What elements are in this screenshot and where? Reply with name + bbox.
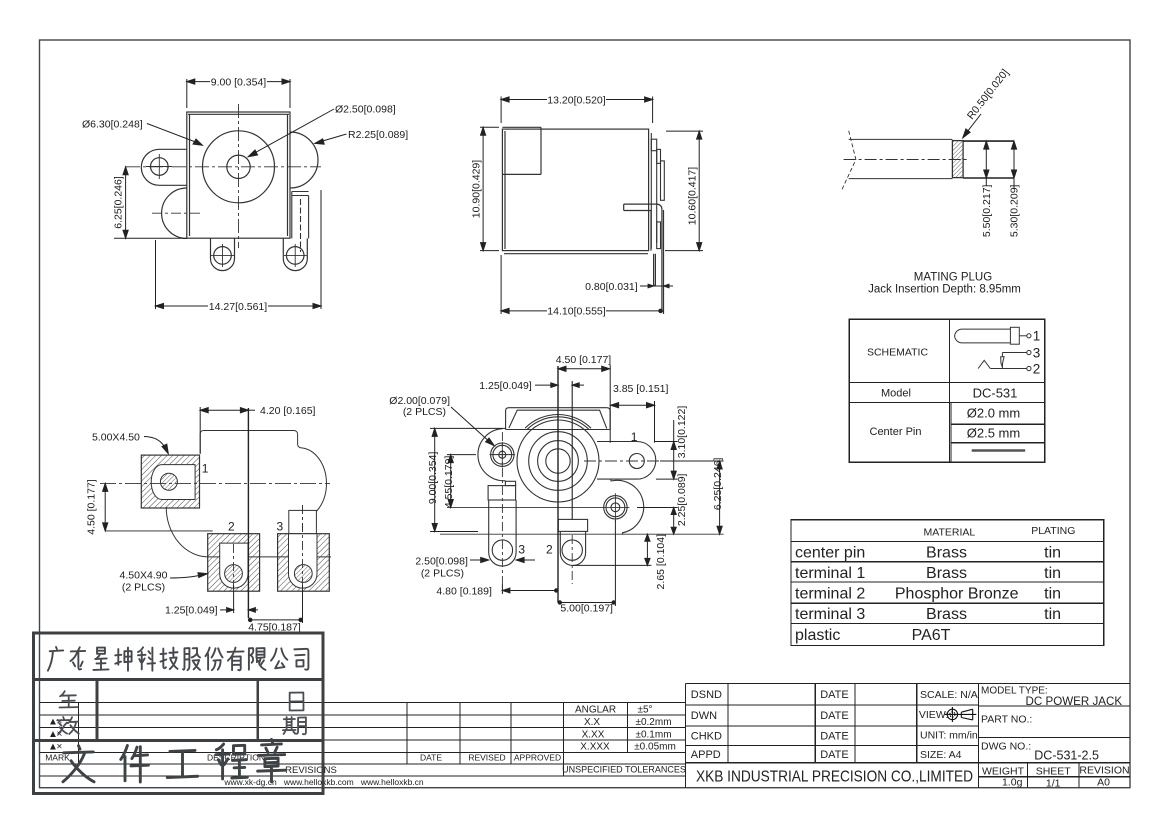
svg-text:Model: Model	[881, 388, 911, 400]
svg-text:±0.2mm: ±0.2mm	[635, 717, 671, 728]
svg-text:13.20[0.520]: 13.20[0.520]	[547, 94, 605, 106]
svg-text:tin: tin	[1044, 565, 1061, 582]
svg-text:1.0g: 1.0g	[1002, 776, 1023, 788]
svg-text:PART NO.:: PART NO.:	[981, 713, 1032, 725]
svg-text:14.27[0.561]: 14.27[0.561]	[209, 301, 267, 313]
svg-text:DWN: DWN	[691, 710, 717, 722]
svg-text:A0: A0	[1097, 776, 1110, 788]
svg-text:(2 PLCS): (2 PLCS)	[403, 406, 446, 418]
svg-text:9.00 [0.354]: 9.00 [0.354]	[211, 76, 267, 88]
svg-text:1/1: 1/1	[1046, 777, 1061, 789]
svg-text:9.00[0.354]: 9.00[0.354]	[427, 452, 439, 505]
svg-text:5.00[0.197]: 5.00[0.197]	[560, 602, 613, 614]
svg-text:REVISION: REVISION	[1079, 764, 1129, 776]
svg-text:X.XX: X.XX	[582, 729, 605, 740]
svg-text:4.50X4.90: 4.50X4.90	[120, 569, 168, 581]
svg-text:±0.05mm: ±0.05mm	[634, 742, 676, 753]
svg-text:4.50 [0.177]: 4.50 [0.177]	[556, 354, 612, 366]
svg-text:DATE: DATE	[820, 749, 849, 761]
svg-text:(2 PLCS): (2 PLCS)	[421, 567, 464, 579]
svg-text:2: 2	[1033, 362, 1041, 377]
svg-text:UNSPECIFIED TOLERANCES: UNSPECIFIED TOLERANCES	[562, 764, 686, 774]
svg-text:1: 1	[202, 461, 209, 475]
svg-text:Brass: Brass	[926, 606, 967, 623]
svg-text:DC-531-2.5: DC-531-2.5	[1034, 749, 1099, 763]
svg-text:5.30[0.209]: 5.30[0.209]	[1008, 184, 1020, 237]
svg-text:1: 1	[631, 430, 638, 444]
svg-text:0.80[0.031]: 0.80[0.031]	[585, 281, 638, 293]
svg-text:10.60[0.417]: 10.60[0.417]	[687, 167, 699, 225]
svg-text:ANGLAR: ANGLAR	[575, 705, 616, 716]
svg-text:SCHEMATIC: SCHEMATIC	[867, 347, 928, 359]
svg-text:4.55[0.179]: 4.55[0.179]	[443, 456, 455, 509]
svg-text:SCALE: N/A: SCALE: N/A	[920, 689, 978, 701]
svg-text:tin: tin	[1044, 544, 1061, 561]
svg-text:PA6T: PA6T	[912, 627, 951, 644]
svg-text:5.50[0.217]: 5.50[0.217]	[981, 184, 993, 237]
svg-text:XKB INDUSTRIAL PRECISION CO.,L: XKB INDUSTRIAL PRECISION CO.,LIMITED	[696, 769, 973, 786]
svg-text:DATE: DATE	[820, 710, 849, 722]
svg-text:×: ×	[57, 741, 63, 752]
svg-text:1.25[0.049]: 1.25[0.049]	[479, 380, 532, 392]
svg-text:3: 3	[277, 520, 284, 534]
svg-text:R2.25[0.089]: R2.25[0.089]	[348, 129, 408, 141]
svg-text:DC POWER JACK: DC POWER JACK	[1026, 694, 1123, 708]
svg-text:tin: tin	[1044, 606, 1061, 623]
svg-text:4.20 [0.165]: 4.20 [0.165]	[260, 405, 316, 417]
svg-text:REVISED: REVISED	[468, 753, 505, 763]
svg-text:1: 1	[1033, 329, 1041, 344]
svg-text:2.65 [0.104]: 2.65 [0.104]	[655, 534, 667, 590]
svg-text:10.90[0.429]: 10.90[0.429]	[471, 160, 483, 218]
svg-text:center pin: center pin	[795, 544, 865, 561]
svg-text:4.50 [0.177]: 4.50 [0.177]	[86, 479, 98, 535]
svg-text:MATERIAL: MATERIAL	[924, 527, 976, 539]
svg-text:2.25[0.089]: 2.25[0.089]	[676, 473, 688, 526]
svg-text:3.85 [0.151]: 3.85 [0.151]	[613, 383, 669, 395]
svg-text:PLATING: PLATING	[1031, 525, 1075, 537]
svg-text:3: 3	[1033, 345, 1041, 360]
svg-text:UNIT: mm/in: UNIT: mm/in	[920, 730, 978, 742]
svg-text:DSND: DSND	[691, 689, 722, 701]
svg-text:4.80 [0.189]: 4.80 [0.189]	[436, 586, 492, 598]
svg-text:5.00X4.50: 5.00X4.50	[92, 432, 140, 444]
svg-text:terminal 1: terminal 1	[795, 565, 865, 582]
svg-text:Ø2.5 mm: Ø2.5 mm	[967, 426, 1020, 441]
svg-text:2: 2	[546, 543, 553, 557]
svg-text:3: 3	[518, 543, 525, 557]
svg-text:SHEET: SHEET	[1036, 765, 1072, 777]
svg-text:Center Pin: Center Pin	[870, 426, 922, 438]
svg-text:3.10[0.122]: 3.10[0.122]	[676, 406, 688, 459]
svg-text:tin: tin	[1044, 585, 1061, 602]
svg-text:CHKD: CHKD	[691, 731, 722, 743]
svg-text:APPD: APPD	[691, 749, 721, 761]
svg-text:Jack Insertion Depth: 8.95mm: Jack Insertion Depth: 8.95mm	[868, 283, 1021, 295]
svg-text:2.50[0.098]: 2.50[0.098]	[415, 556, 468, 568]
svg-text:Ø2.50[0.098]: Ø2.50[0.098]	[335, 103, 396, 115]
svg-text:SIZE: A4: SIZE: A4	[920, 749, 962, 761]
svg-text:X.XXX: X.XXX	[580, 742, 610, 753]
svg-text:Phosphor Bronze: Phosphor Bronze	[895, 585, 1019, 602]
svg-text:DATE: DATE	[820, 731, 849, 743]
svg-text:terminal 3: terminal 3	[795, 606, 865, 623]
svg-text:X.X: X.X	[584, 717, 600, 728]
svg-text:Brass: Brass	[926, 544, 967, 561]
svg-text:Ø2.0 mm: Ø2.0 mm	[967, 406, 1020, 421]
svg-text:DATE: DATE	[820, 689, 849, 701]
svg-text:2: 2	[228, 520, 235, 534]
svg-text:VIEW:: VIEW:	[919, 709, 949, 721]
svg-text:DC-531: DC-531	[973, 386, 1018, 401]
svg-text:(2 PLCS): (2 PLCS)	[122, 581, 165, 593]
svg-text:Brass: Brass	[926, 565, 967, 582]
svg-text:±0.1mm: ±0.1mm	[635, 729, 671, 740]
svg-text:6.25[0.246]: 6.25[0.246]	[113, 176, 125, 229]
svg-text:APPROVED: APPROVED	[514, 753, 561, 763]
svg-text:terminal 2: terminal 2	[795, 585, 865, 602]
svg-text:plastic: plastic	[795, 627, 840, 644]
svg-text:±5°: ±5°	[637, 705, 652, 716]
svg-text:MATING PLUG: MATING PLUG	[914, 271, 992, 283]
svg-text:14.10[0.555]: 14.10[0.555]	[547, 305, 605, 317]
svg-text:REVISIONS: REVISIONS	[285, 765, 337, 776]
svg-text:DWG NO.:: DWG NO.:	[981, 741, 1031, 753]
svg-text:Ø6.30[0.248]: Ø6.30[0.248]	[82, 119, 143, 131]
svg-text:6.25[0.246]: 6.25[0.246]	[712, 457, 724, 510]
svg-text:1.25[0.049]: 1.25[0.049]	[165, 605, 218, 617]
svg-text:DATE: DATE	[420, 753, 442, 763]
